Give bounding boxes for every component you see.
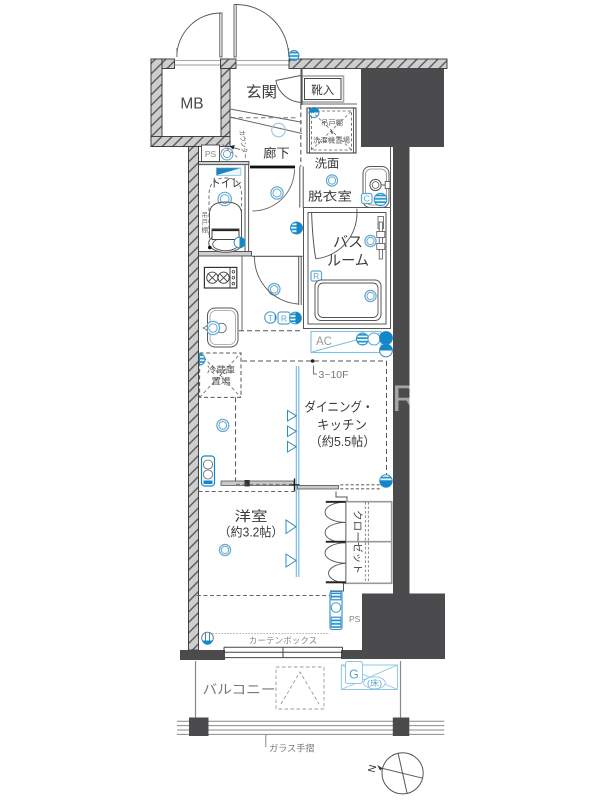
svg-text:玄関: 玄関 [246, 84, 277, 101]
svg-text:吊: 吊 [202, 211, 209, 219]
svg-text:C: C [364, 194, 370, 204]
svg-text:キッチン: キッチン [317, 418, 367, 433]
svg-text:洋室: 洋室 [235, 508, 268, 524]
svg-text:G: G [349, 668, 359, 682]
svg-text:ダイニング・: ダイニング・ [305, 400, 374, 415]
svg-text:（約5.5帖）: （約5.5帖） [310, 434, 376, 449]
svg-text:冷蔵庫: 冷蔵庫 [207, 364, 235, 375]
svg-text:ガラス手摺: ガラス手摺 [269, 743, 315, 754]
svg-text:バス: バス [333, 235, 363, 251]
svg-text:置場: 置場 [212, 376, 231, 387]
svg-text:脱衣室: 脱衣室 [308, 189, 352, 204]
svg-text:廊下: 廊下 [263, 146, 290, 161]
svg-text:T: T [268, 313, 273, 323]
svg-text:バルコニー: バルコニー [203, 682, 276, 697]
svg-text:洗面: 洗面 [315, 157, 340, 171]
svg-text:PS: PS [205, 149, 217, 159]
svg-text:ルーム: ルーム [327, 254, 369, 270]
svg-text:戸: 戸 [202, 219, 209, 227]
svg-text:R: R [281, 313, 287, 323]
svg-text:靴入: 靴入 [311, 83, 334, 97]
svg-text:棚: 棚 [202, 225, 209, 234]
svg-text:3~10F: 3~10F [319, 369, 349, 381]
svg-text:クローゼット: クローゼット [351, 510, 363, 574]
svg-text:吊戸棚: 吊戸棚 [321, 118, 343, 127]
svg-text:AC: AC [316, 336, 332, 348]
svg-text:MB: MB [180, 96, 203, 113]
svg-text:R: R [313, 271, 319, 281]
svg-text:（約3.2帖）: （約3.2帖） [219, 525, 284, 540]
svg-text:洗濯機置場: 洗濯機置場 [313, 136, 350, 145]
svg-text:PS: PS [349, 614, 361, 624]
svg-text:(床): (床) [367, 678, 382, 688]
svg-text:カーテンボックス: カーテンボックス [249, 636, 318, 646]
